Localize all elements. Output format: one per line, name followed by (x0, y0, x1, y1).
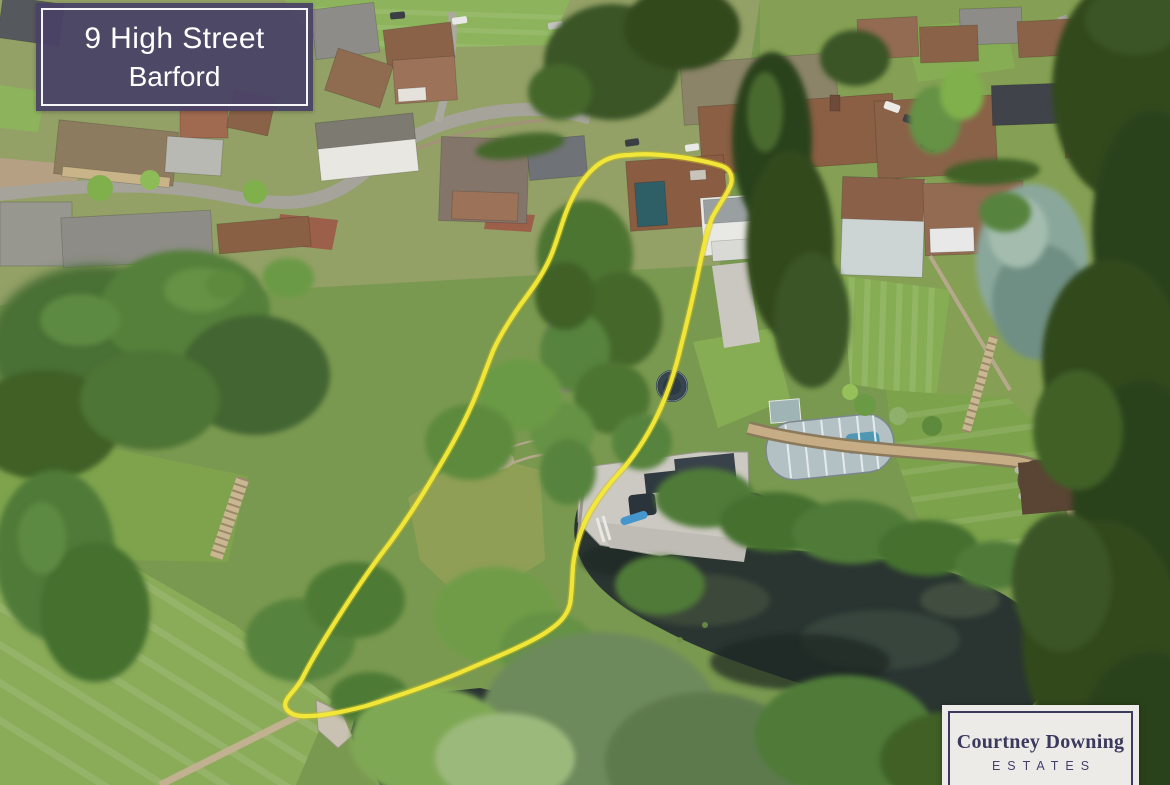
agency-logo-border: Courtney Downing ESTATES (948, 711, 1133, 785)
property-address-label-border: 9 High Street Barford (41, 8, 308, 106)
property-address-label: 9 High Street Barford (36, 3, 313, 111)
agency-name: Courtney Downing (957, 731, 1125, 754)
agency-tagline: ESTATES (985, 759, 1096, 773)
agency-logo: Courtney Downing ESTATES (942, 705, 1139, 785)
aerial-photo (0, 0, 1170, 785)
property-address-line2: Barford (129, 61, 221, 93)
garden-shed (769, 399, 801, 424)
aerial-photo-page: 9 High Street Barford Courtney Downing E… (0, 0, 1170, 785)
property-address-line1: 9 High Street (84, 22, 264, 56)
